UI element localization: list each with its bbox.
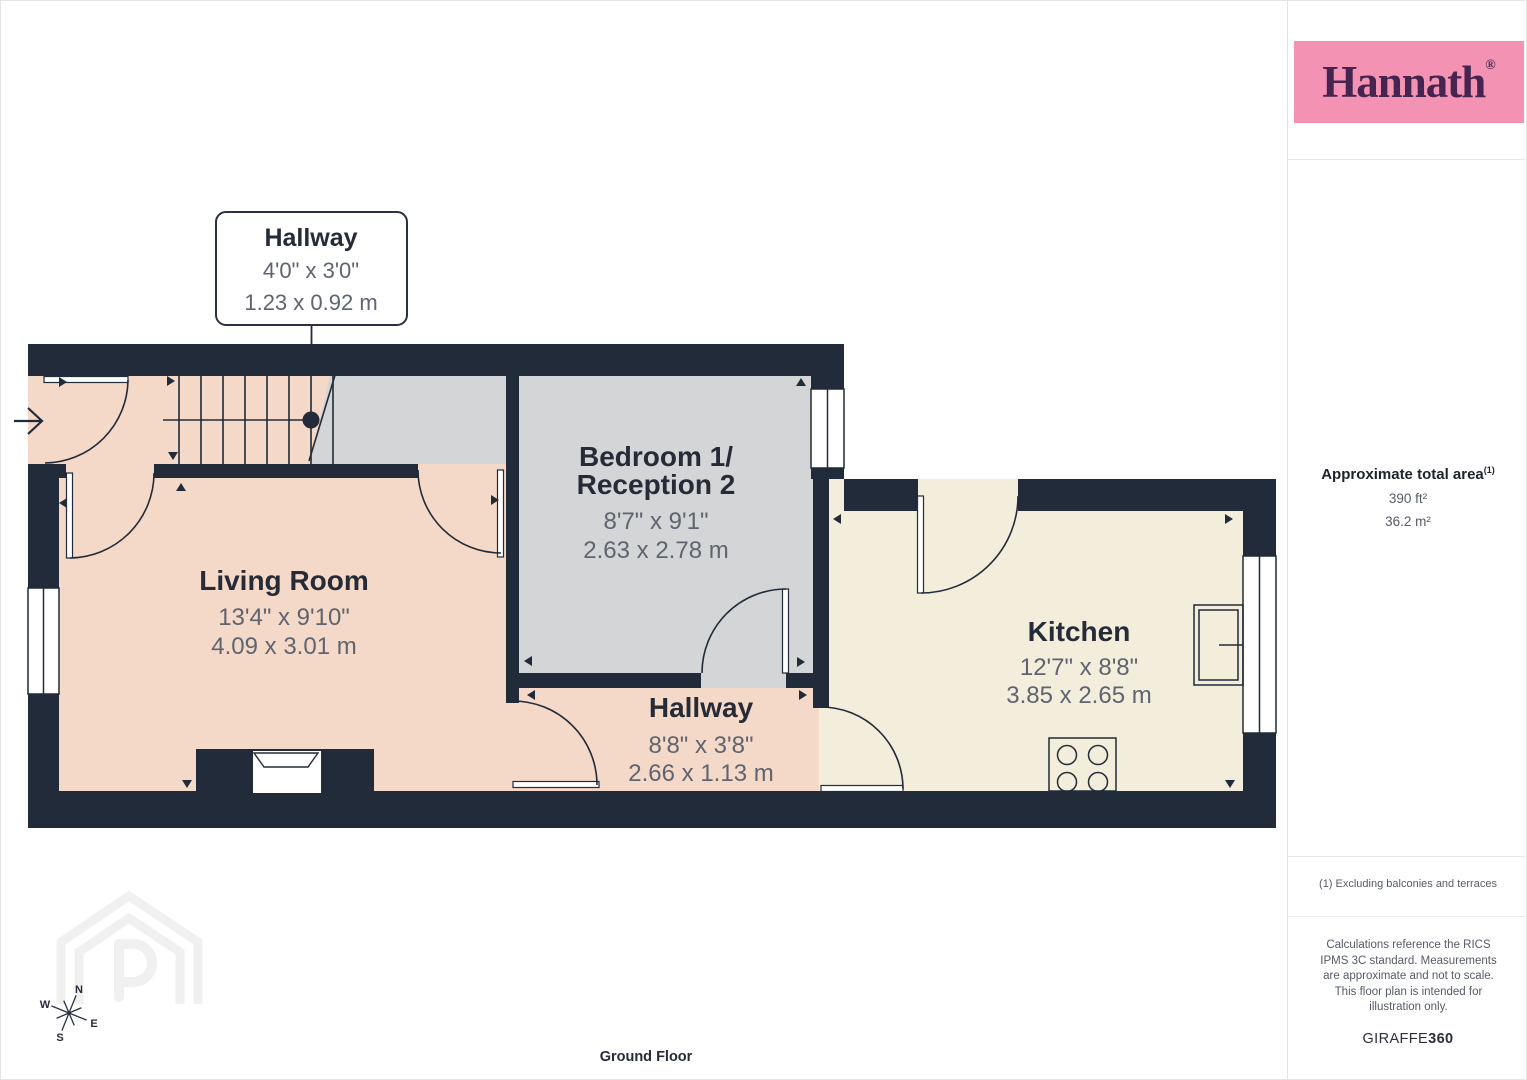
giraffe360-brand-regular: GIRAFFE [1362,1031,1428,1047]
giraffe360-brand: GIRAFFE360 [1288,1031,1527,1047]
total-area-metric: 36.2 m² [1288,514,1527,529]
living-room-dims-imperial: 13'4" x 9'10" [218,604,350,631]
living-room-window [28,588,59,694]
wall-kitchen-west [813,479,829,708]
agency-logo-text: Hannath® [1322,59,1496,105]
hallway-label: Hallway 8'8" x 3'8" 2.66 x 1.13 m [628,692,773,787]
total-area-title: Approximate total area(1) [1288,465,1527,483]
registered-trademark-icon: ® [1485,58,1495,73]
giraffe360-brand-bold: 360 [1428,1031,1453,1047]
fireplace [253,751,321,793]
wall-kitchen-north-right [1018,479,1243,511]
stove [1049,738,1116,792]
fireplace-hearth [254,753,318,767]
hallway-name: Hallway [649,692,754,723]
wall-bedroom-west [506,376,519,703]
agency-name: Hannath [1322,57,1485,107]
disclaimer-text: Calculations reference the RICS IPMS 3C … [1312,938,1505,1016]
sidebar-divider-middle [1288,856,1527,857]
wall-kitchen-north-left [844,479,918,511]
callout-dims-imperial: 4'0" x 3'0" [263,258,359,283]
living-room-name: Living Room [199,565,369,596]
wall-kitchen-east-upper [1243,479,1276,556]
kitchen-dims-imperial: 12'7" x 8'8" [1020,654,1138,681]
stair-walkline-dot [303,412,320,429]
wall-stub-entry [28,464,66,478]
wall-west-lower [28,694,59,794]
wall-north [28,344,844,376]
compass: N E S W [40,984,98,1044]
floorplan-canvas: Hallway 4'0" x 3'0" 1.23 x 0.92 m Living… [1,1,1287,1080]
sidebar-divider-bottom [1288,916,1527,917]
balconies-footnote: (1) Excluding balconies and terraces [1288,878,1527,890]
hallway-dims-imperial: 8'8" x 3'8" [649,732,754,759]
total-area-imperial: 390 ft² [1288,491,1527,506]
floor-name-label: Ground Floor [600,1049,693,1065]
compass-south-label: S [56,1032,63,1044]
info-sidebar: Hannath® Approximate total area(1) 390 f… [1287,1,1527,1080]
hallway-callout: Hallway 4'0" x 3'0" 1.23 x 0.92 m [216,212,407,347]
floorplan-drawing: Hallway 4'0" x 3'0" 1.23 x 0.92 m Living… [1,1,1287,1080]
living-room-label: Living Room 13'4" x 9'10" 4.09 x 3.01 m [199,565,369,660]
compass-east-label: E [90,1018,97,1030]
compass-north-label: N [75,984,83,996]
footnote-marker: (1) [1484,465,1495,475]
total-area-title-text: Approximate total area [1321,466,1484,483]
kitchen-name: Kitchen [1028,616,1131,647]
floorplan-page: Hallway 4'0" x 3'0" 1.23 x 0.92 m Living… [0,0,1527,1080]
sidebar-divider-top [1288,159,1527,160]
kitchen-label: Kitchen 12'7" x 8'8" 3.85 x 2.65 m [1006,616,1151,709]
bedroom-name-line1: Bedroom 1/ [579,441,733,472]
bedroom-window [811,389,844,468]
agency-logo: Hannath® [1294,41,1524,123]
wall-west-upper [28,464,59,588]
wall-stairs-living [154,464,418,478]
wall-east-below-window [811,468,844,479]
compass-west-label: W [40,999,51,1011]
wall-bedroom-south-right [786,673,813,688]
bedroom-dims-imperial: 8'7" x 9'1" [604,508,709,535]
total-area-block: Approximate total area(1) 390 ft² 36.2 m… [1288,465,1527,529]
wall-kitchen-east-lower [1243,733,1276,791]
kitchen-dims-metric: 3.85 x 2.65 m [1006,682,1151,709]
callout-title: Hallway [264,224,357,252]
wall-bedroom-south-left [518,673,701,688]
wall-east-above-window [811,344,844,389]
kitchen-window [1243,556,1276,733]
hallway-dims-metric: 2.66 x 1.13 m [628,760,773,787]
wall-south [28,791,1276,828]
bedroom-dims-metric: 2.63 x 2.78 m [583,537,728,564]
living-room-dims-metric: 4.09 x 3.01 m [211,633,356,660]
bedroom-name-line2: Reception 2 [577,469,736,500]
callout-dims-metric: 1.23 x 0.92 m [244,290,377,315]
